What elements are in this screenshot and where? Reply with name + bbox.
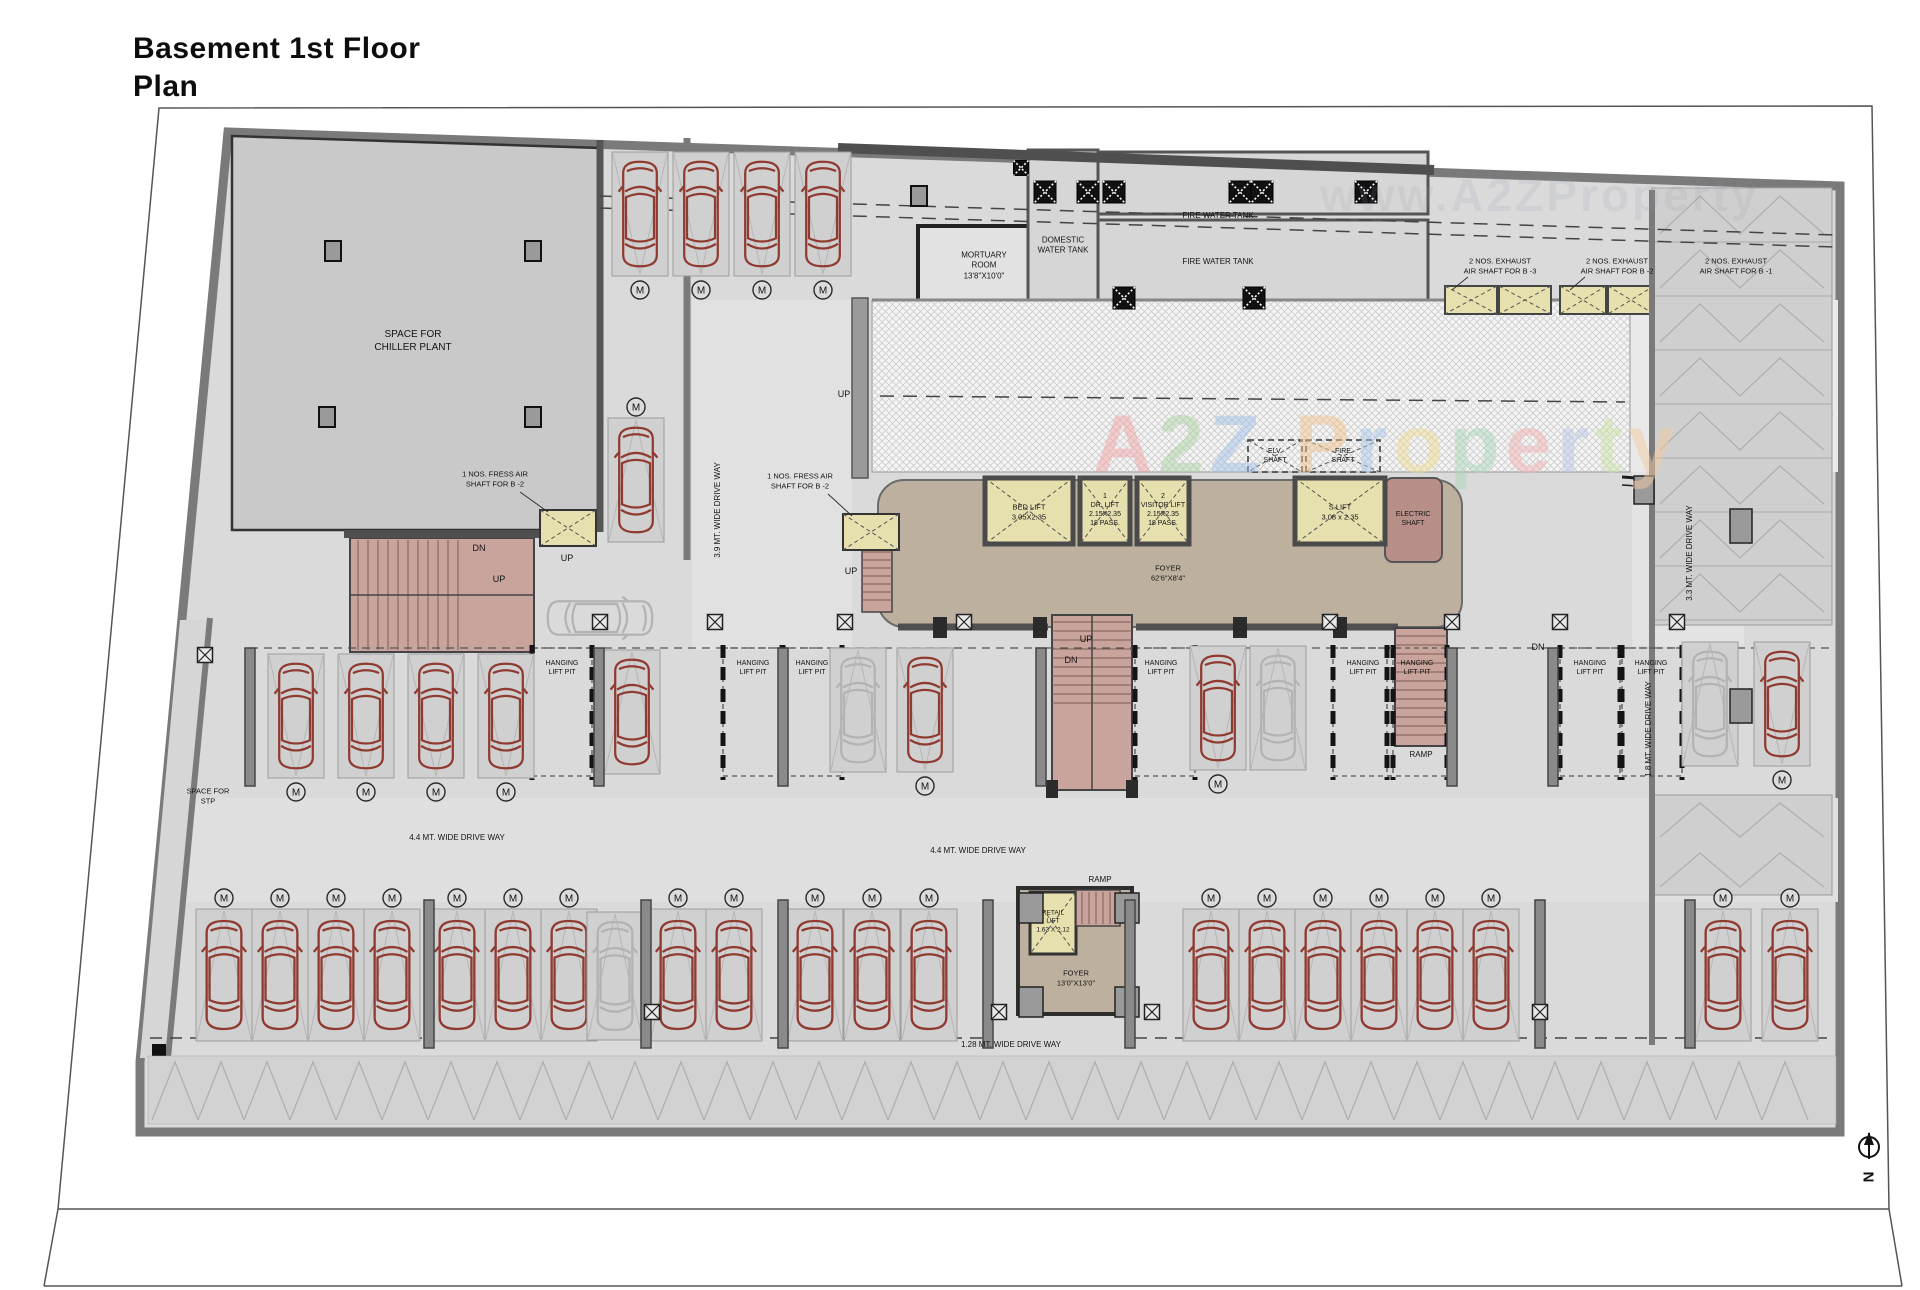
parking-spot xyxy=(268,654,324,778)
parking-wall xyxy=(1535,900,1545,1048)
m-badge-letter: M xyxy=(921,782,929,793)
ramp-side-wall xyxy=(852,298,868,478)
parking-spot xyxy=(734,152,790,276)
parking-spot xyxy=(1754,642,1810,766)
wall-column xyxy=(1019,987,1043,1017)
parking-wall xyxy=(594,648,604,786)
parking-wall xyxy=(983,900,993,1048)
parking-spot xyxy=(1250,646,1306,770)
m-badge-letter: M xyxy=(502,788,510,799)
m-badge-letter: M xyxy=(758,286,766,297)
ramp-hatch-area xyxy=(872,300,1630,472)
m-badge-letter: M xyxy=(925,894,933,905)
m-badge-letter: M xyxy=(674,894,682,905)
plot-boundary-outer xyxy=(1889,1209,1902,1286)
m-badge-letter: M xyxy=(1207,894,1215,905)
m-badge-letter: M xyxy=(697,286,705,297)
structural-column xyxy=(525,241,541,261)
m-badge-letter: M xyxy=(811,894,819,905)
parking-wall xyxy=(641,900,651,1048)
parking-wall xyxy=(1447,648,1457,786)
m-badge-letter: M xyxy=(276,894,284,905)
north-label: N xyxy=(1861,1172,1878,1183)
wall-column xyxy=(1233,617,1247,638)
m-badge-letter: M xyxy=(332,894,340,905)
electric-shaft-area xyxy=(1385,478,1442,562)
parking-wall xyxy=(1036,648,1046,786)
parking-spot xyxy=(897,648,953,772)
parking-wall xyxy=(245,648,255,786)
parking-wall xyxy=(424,900,434,1048)
parking-spot xyxy=(478,654,534,778)
m-badge-letter: M xyxy=(1786,894,1794,905)
m-badge-letter: M xyxy=(1431,894,1439,905)
floor-plan-page: MMMMMMMMMMMMMMMMMMMMMMMMMMMMMMMM Basemen… xyxy=(0,0,1920,1290)
wall-column xyxy=(1033,617,1047,638)
m-badge-letter: M xyxy=(868,894,876,905)
m-badge-letter: M xyxy=(453,894,461,905)
parking-spot xyxy=(673,152,729,276)
wall-column xyxy=(933,617,947,638)
structural-column xyxy=(1730,689,1752,723)
m-badge-letter: M xyxy=(362,788,370,799)
chiller-plant-room xyxy=(232,136,600,530)
parking-wall xyxy=(1685,900,1695,1048)
structural-column xyxy=(325,241,341,261)
floor-plan-canvas: MMMMMMMMMMMMMMMMMMMMMMMMMMMMMMMM xyxy=(0,0,1920,1290)
structural-column xyxy=(1730,509,1752,543)
m-badge-letter: M xyxy=(432,788,440,799)
parking-spot xyxy=(338,654,394,778)
structural-column xyxy=(525,407,541,427)
m-badge-letter: M xyxy=(1214,780,1222,791)
angled-parking xyxy=(1652,795,1832,895)
m-badge-letter: M xyxy=(565,894,573,905)
m-badge-letter: M xyxy=(636,286,644,297)
parking-spot xyxy=(830,648,886,772)
drive-lane xyxy=(692,300,852,650)
m-badge-letter: M xyxy=(819,286,827,297)
angled-parking xyxy=(1652,188,1832,625)
domestic-tank-room xyxy=(1028,150,1098,314)
m-badge-letter: M xyxy=(730,894,738,905)
structural-column xyxy=(319,407,335,427)
tank-support xyxy=(1014,161,1029,176)
bottom-ramp-stair xyxy=(1076,890,1120,926)
right-ramp-stair xyxy=(1395,628,1447,746)
parking-spot xyxy=(608,418,664,542)
parking-spot xyxy=(587,912,643,1040)
m-badge-letter: M xyxy=(388,894,396,905)
m-badge-letter: M xyxy=(292,788,300,799)
m-badge-letter: M xyxy=(509,894,517,905)
wall-column xyxy=(1126,780,1138,798)
structural-column xyxy=(911,186,927,206)
parking-wall xyxy=(1548,648,1558,786)
parking-wall xyxy=(1125,900,1135,1048)
parking-spot xyxy=(612,152,668,276)
page-title: Basement 1st Floor Plan xyxy=(133,30,433,105)
parking-spot xyxy=(1190,646,1246,770)
m-badge-letter: M xyxy=(1719,894,1727,905)
structural-column xyxy=(1634,476,1654,504)
m-badge-letter: M xyxy=(1375,894,1383,905)
drive-lane xyxy=(170,798,1838,902)
parking-spot xyxy=(604,650,660,774)
parking-wall xyxy=(778,900,788,1048)
m-badge-letter: M xyxy=(1319,894,1327,905)
plot-boundary-outer xyxy=(44,1209,58,1286)
m-badge-letter: M xyxy=(1778,776,1786,787)
wall-column xyxy=(1046,780,1058,798)
m-badge-letter: M xyxy=(632,403,640,414)
m-badge-letter: M xyxy=(1263,894,1271,905)
m-badge-letter: M xyxy=(220,894,228,905)
parking-spot xyxy=(408,654,464,778)
parking-spot xyxy=(795,152,851,276)
wall-column xyxy=(1019,893,1043,923)
parking-wall xyxy=(778,648,788,786)
m-badge-letter: M xyxy=(1487,894,1495,905)
